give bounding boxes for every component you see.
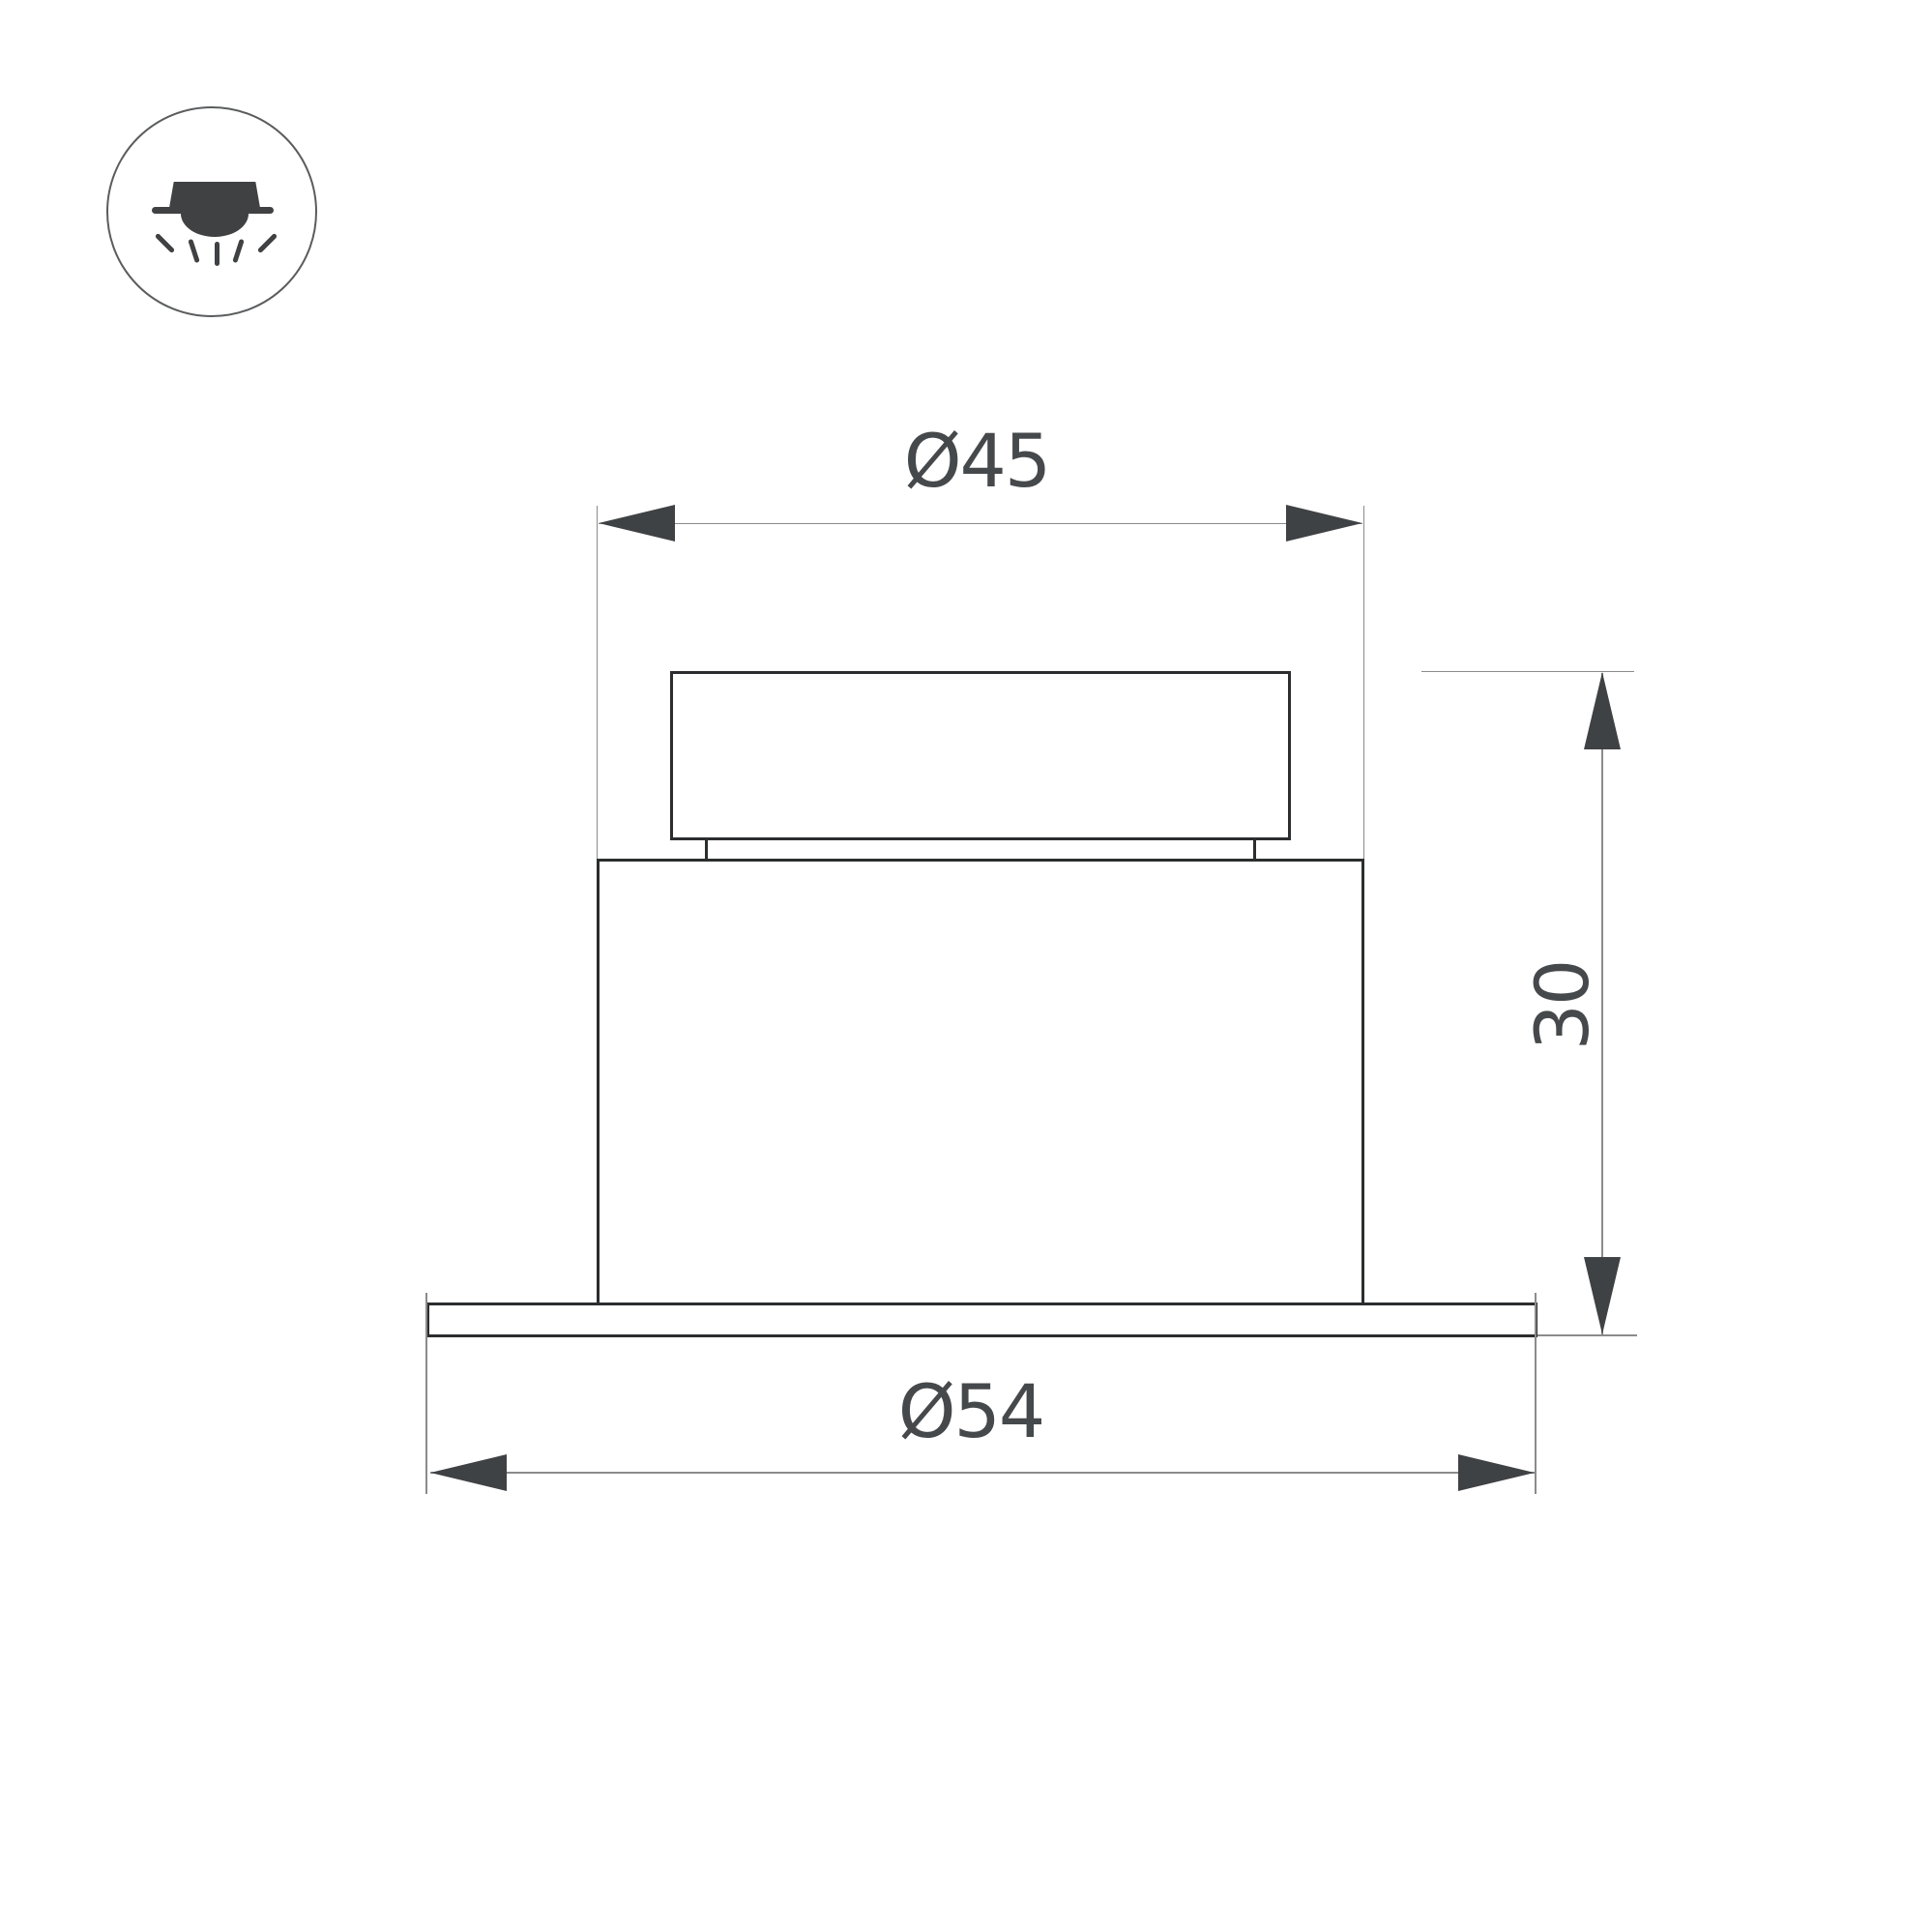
d54-arrow-right-icon	[1458, 1454, 1535, 1491]
d54-dimension-line	[430, 1472, 1535, 1474]
h30-arrow-down-icon	[1584, 1257, 1621, 1334]
fixture-neck-right-edge	[1253, 840, 1256, 861]
d45-extension-line-left	[597, 506, 599, 859]
fixture-body-outline	[597, 859, 1364, 1303]
recessed-downlight-icon	[169, 182, 260, 208]
d54-extension-line-left	[425, 1293, 427, 1494]
d54-extension-line-right	[1535, 1293, 1537, 1494]
d54-arrow-left-icon	[430, 1454, 507, 1491]
d45-extension-line-right	[1363, 506, 1365, 859]
d45-arrow-left-icon	[599, 505, 675, 542]
h30-dimension-label: 30	[1524, 909, 1601, 1102]
d45-arrow-right-icon	[1286, 505, 1362, 542]
fixture-flange-outline	[426, 1303, 1537, 1337]
light-ray-icon	[215, 242, 220, 266]
drawing-canvas: Ø45 Ø54 30	[0, 0, 1932, 1932]
fixture-head-outline	[670, 671, 1291, 840]
d45-dimension-label: Ø45	[783, 423, 1170, 500]
h30-extension-line-bottom	[1537, 1334, 1637, 1336]
d45-dimension-line	[599, 523, 1362, 525]
d54-dimension-label: Ø54	[777, 1373, 1164, 1450]
downlight-flange-glyph	[152, 207, 274, 214]
fixture-neck-left-edge	[705, 840, 708, 861]
h30-arrow-up-icon	[1584, 672, 1621, 749]
